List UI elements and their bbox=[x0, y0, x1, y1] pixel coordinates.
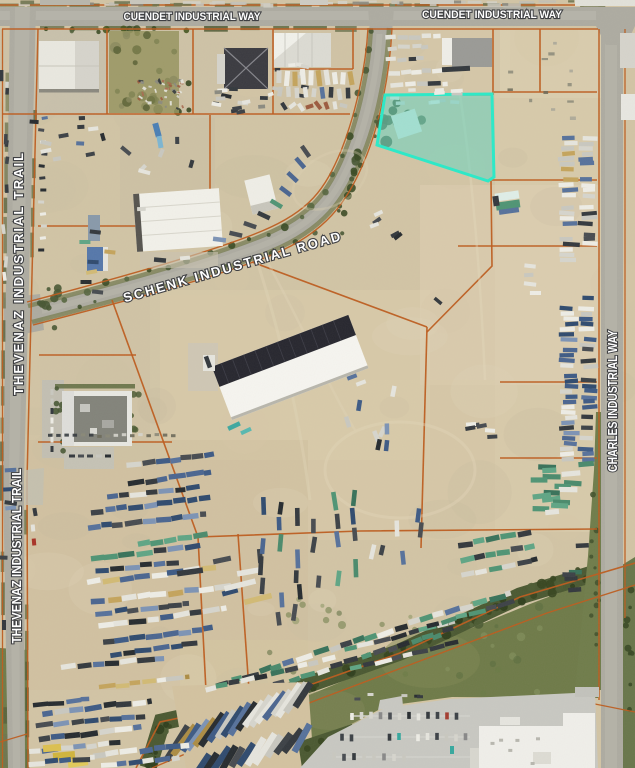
svg-text:CUENDET INDUSTRIAL WAY: CUENDET INDUSTRIAL WAY bbox=[422, 9, 563, 21]
svg-text:CHARLES INDUSTRIAL WAY: CHARLES INDUSTRIAL WAY bbox=[605, 330, 620, 472]
svg-text:THEVENAZ INDUSTRIAL TRAIL: THEVENAZ INDUSTRIAL TRAIL bbox=[9, 468, 24, 643]
svg-text:CUENDET INDUSTRIAL WAY: CUENDET INDUSTRIAL WAY bbox=[124, 11, 262, 23]
svg-text:THEVENAZ INDUSTRIAL TRAIL: THEVENAZ INDUSTRIAL TRAIL bbox=[11, 151, 26, 395]
